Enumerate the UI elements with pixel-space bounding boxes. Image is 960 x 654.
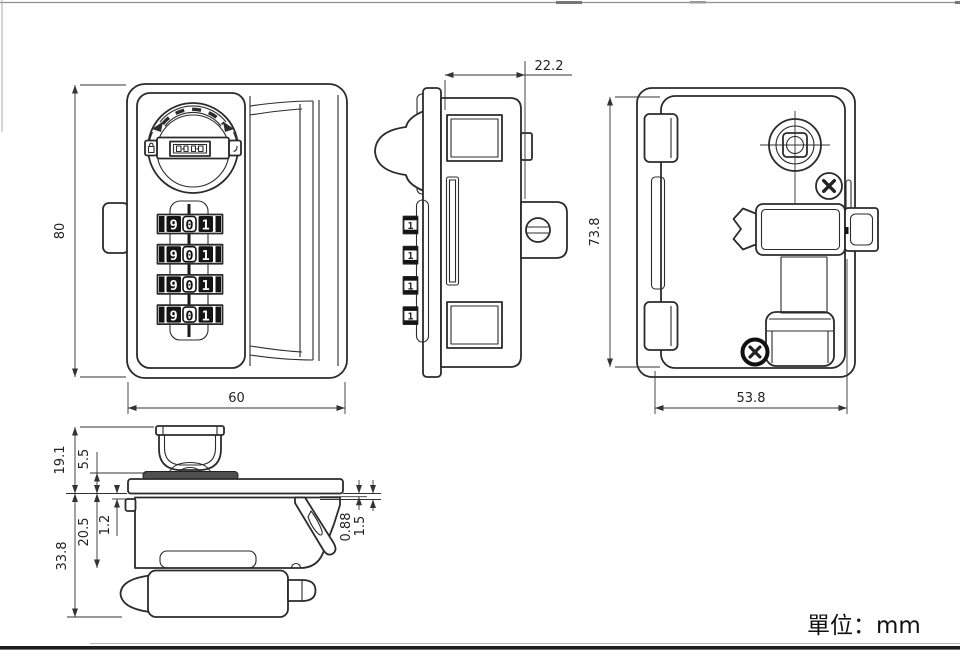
dim-body-depth: 20.5 xyxy=(77,494,97,569)
dim-label-body-depth: 20.5 xyxy=(77,518,92,547)
dim-label-front-height: 80 xyxy=(53,223,68,240)
dim-label-tab-gap: 1.2 xyxy=(98,515,113,536)
side-view: 1 1 1 1 xyxy=(375,88,567,377)
wheel-row[interactable]: 9 0 1 xyxy=(158,215,223,234)
wheel-row[interactable]: 9 0 1 xyxy=(158,245,223,264)
wheel-digit: 1 xyxy=(407,281,413,292)
wheel-row[interactable]: 9 0 1 xyxy=(158,305,223,324)
back-latch xyxy=(734,204,879,255)
side-wheel-nub: 1 xyxy=(404,217,418,234)
wheel-digit: 0 xyxy=(185,308,193,324)
dim-label-panel-max: 1.5 xyxy=(353,516,368,537)
front-view: 9 0 1 9 0 1 xyxy=(103,84,347,378)
wheel-digit: 1 xyxy=(202,278,210,294)
wheel-digit: 0 xyxy=(185,218,193,234)
dim-label-knob-height: 19.1 xyxy=(53,446,68,475)
wheel-digit: 1 xyxy=(407,312,413,323)
wheel-digit: 0 xyxy=(185,278,193,294)
side-latch xyxy=(521,202,567,258)
back-top-tab xyxy=(645,114,678,162)
dim-label-panel-min: 0.88 xyxy=(339,513,354,542)
dim-label-knob-base: 5.5 xyxy=(77,449,92,470)
side-wheel-nub: 1 xyxy=(404,247,418,264)
front-left-tab xyxy=(103,203,129,253)
wheel-row[interactable]: 9 0 1 xyxy=(158,275,223,294)
dim-tab-gap: 1.2 xyxy=(98,485,126,536)
wheel-digit: 9 xyxy=(170,278,178,294)
wheel-digit: 1 xyxy=(202,308,210,324)
side-top-nub xyxy=(521,133,532,160)
bottom-knob xyxy=(156,426,224,476)
drawing-page: 9 0 1 9 0 1 xyxy=(0,0,960,654)
lower-left-bulge xyxy=(121,576,151,613)
bottom-view xyxy=(121,426,344,617)
dim-label-side-depth: 22.2 xyxy=(535,59,564,74)
wheel-digit: 1 xyxy=(202,218,210,234)
side-body xyxy=(441,98,521,367)
side-flange xyxy=(423,88,441,377)
back-view xyxy=(637,88,878,377)
wheel-digit: 1 xyxy=(407,221,413,232)
dim-total-depth: 33.8 xyxy=(55,494,122,618)
dim-label-back-width: 53.8 xyxy=(737,391,766,406)
bottom-flange xyxy=(128,479,343,494)
back-bottom-tab xyxy=(645,302,678,350)
dim-label-total-depth: 33.8 xyxy=(55,542,70,571)
latch-block xyxy=(756,204,845,255)
wheel-digit: 9 xyxy=(170,308,178,324)
side-wheel-nub: 1 xyxy=(404,277,418,294)
dim-label-back-height: 73.8 xyxy=(588,218,603,247)
side-wheel-nub: 1 xyxy=(404,307,418,324)
dim-label-front-width: 60 xyxy=(228,391,245,406)
wheel-digit: 1 xyxy=(407,251,413,262)
dial-right-ear xyxy=(229,141,241,156)
wheel-digit: 1 xyxy=(202,248,210,264)
wheel-digit: 9 xyxy=(170,248,178,264)
phillips-screw-icon[interactable] xyxy=(743,340,768,365)
dim-front-width: 60 xyxy=(128,382,345,414)
lower-housing xyxy=(148,571,288,618)
wheel-digit: 9 xyxy=(170,218,178,234)
bottom-left-tab xyxy=(126,499,136,511)
unit-label: 單位：mm xyxy=(807,613,921,639)
wheel-digit: 0 xyxy=(185,248,193,264)
technical-drawing: 9 0 1 9 0 1 xyxy=(0,0,960,654)
